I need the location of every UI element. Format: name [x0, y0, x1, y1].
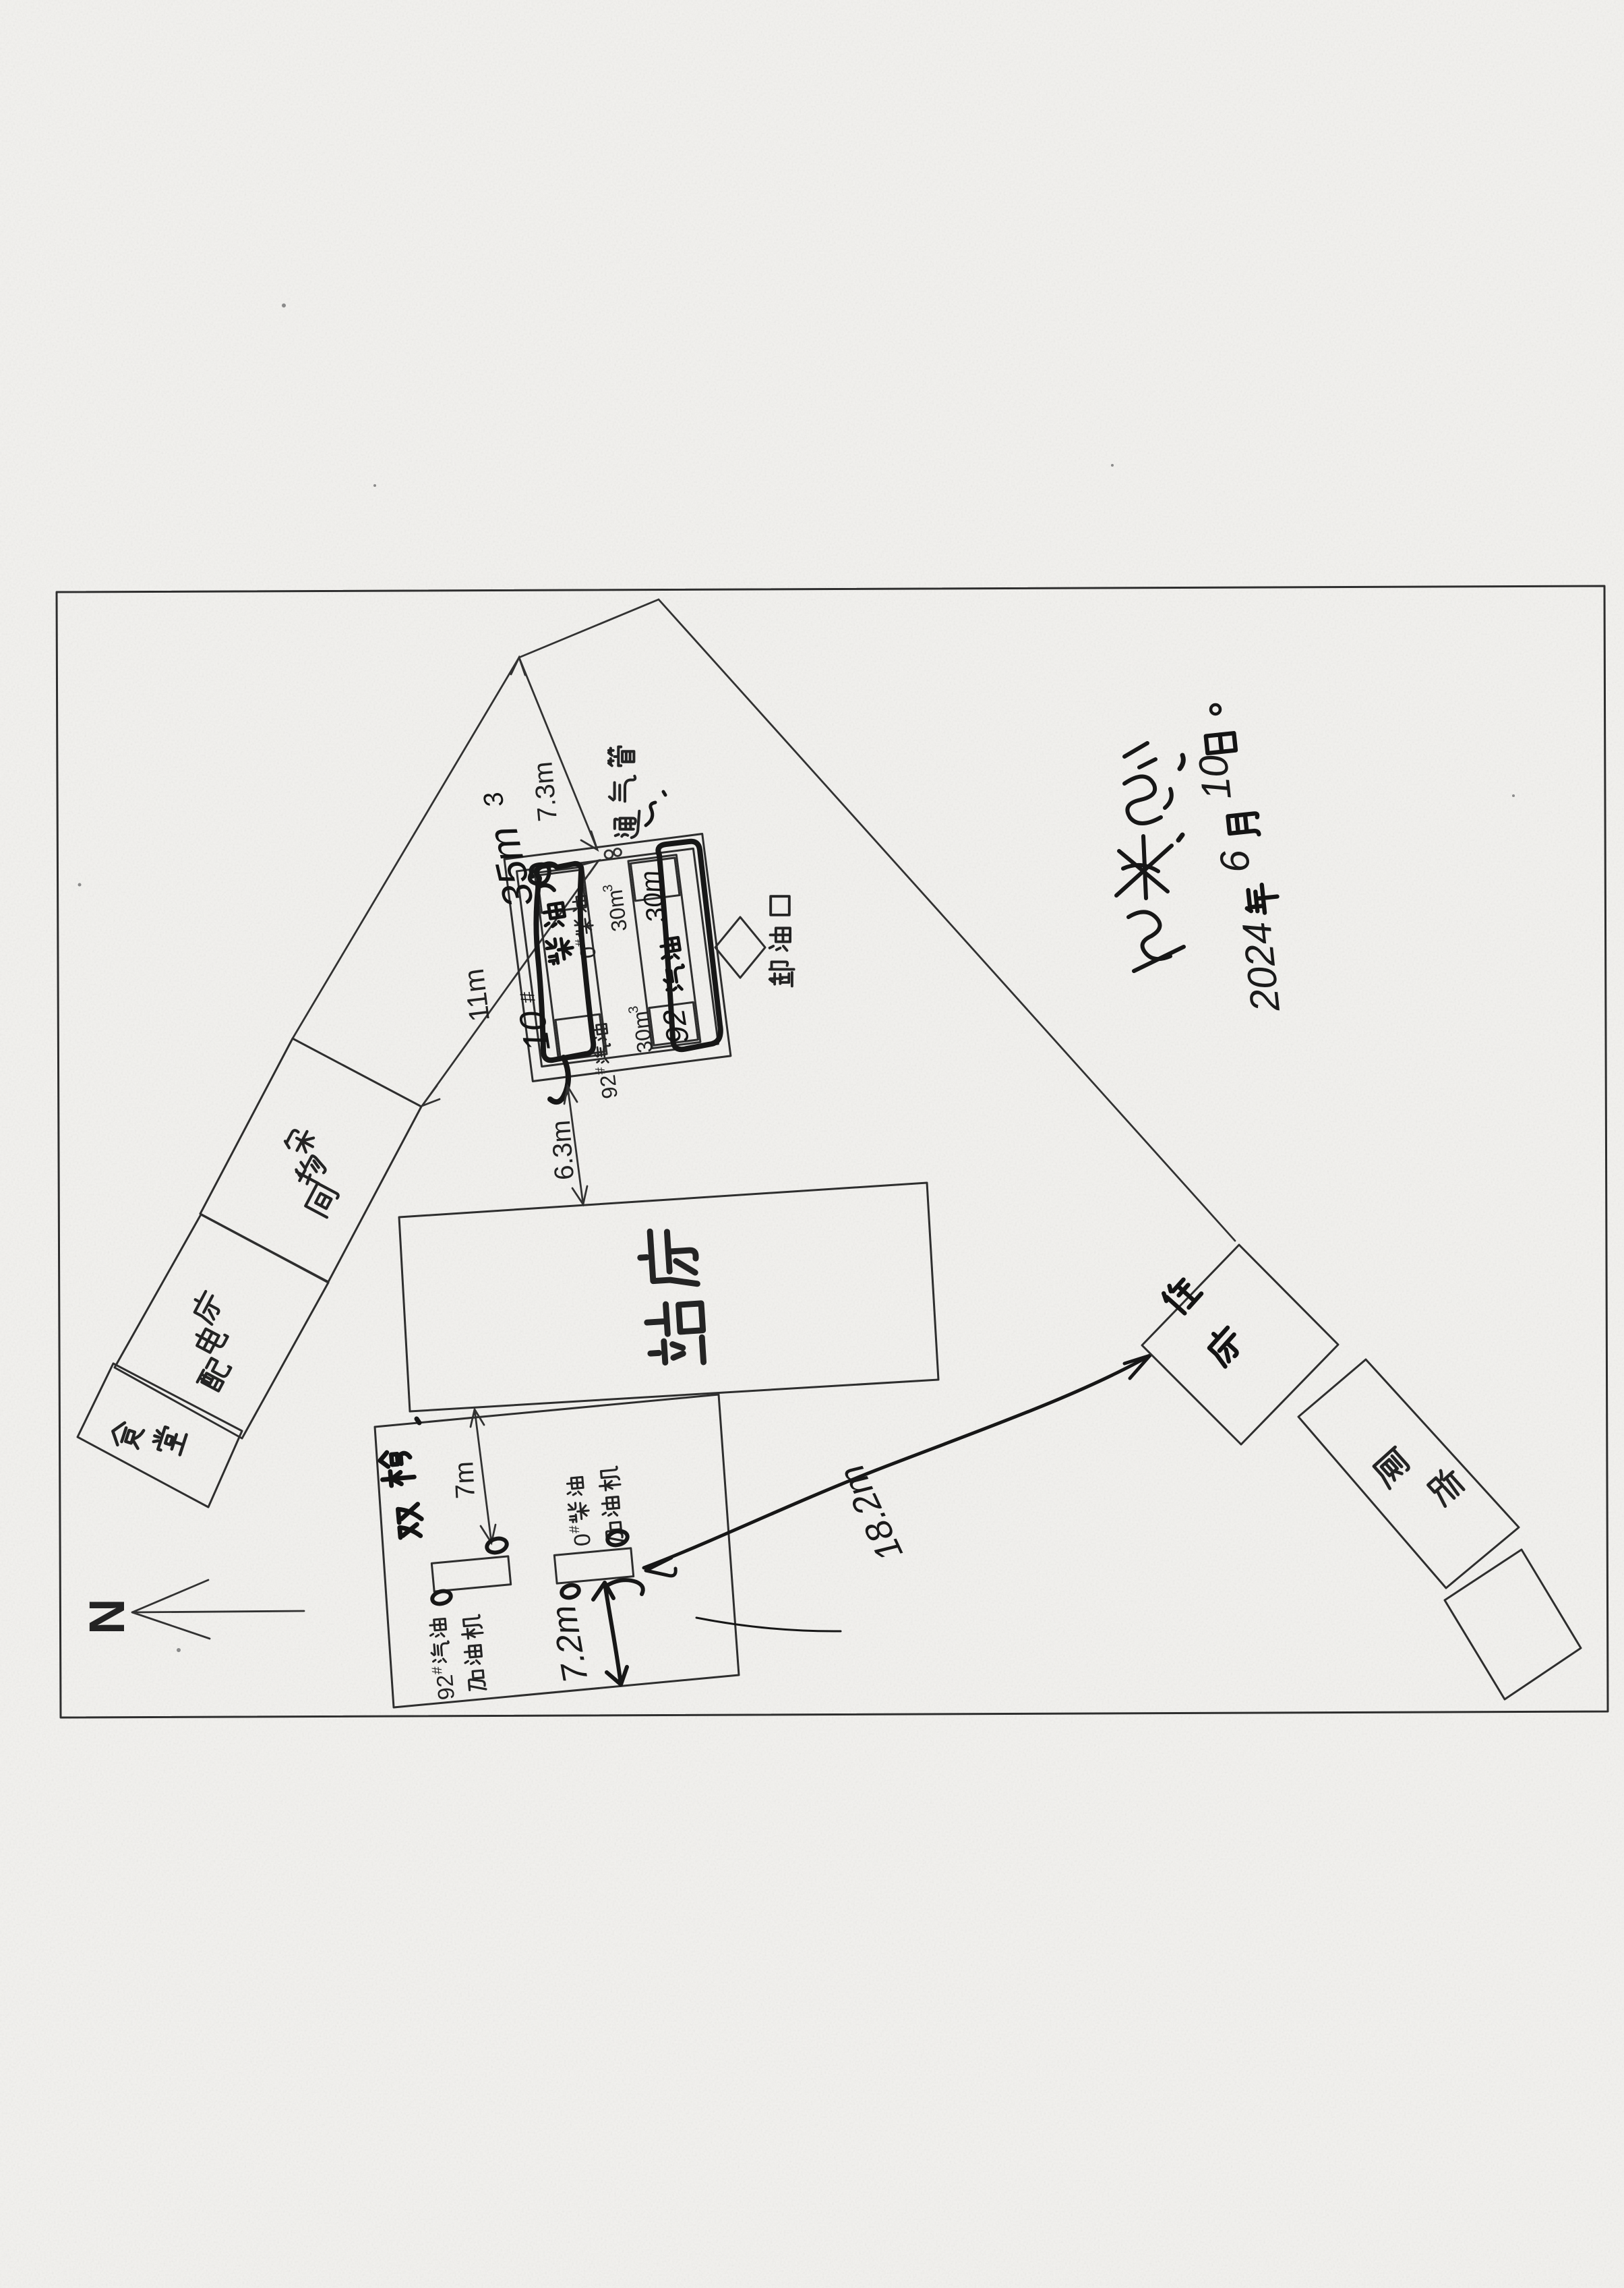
- svg-text:2024: 2024: [1234, 920, 1288, 1015]
- svg-text:7m: 7m: [449, 1461, 481, 1500]
- svg-text:6.3m: 6.3m: [546, 1119, 580, 1181]
- svg-text:30m: 30m: [603, 888, 632, 933]
- svg-text:92: 92: [595, 1074, 622, 1101]
- svg-text:N: N: [79, 1599, 135, 1635]
- svg-text:10: 10: [512, 1008, 558, 1055]
- svg-text:11m: 11m: [458, 967, 495, 1024]
- svg-text:#: #: [429, 1666, 446, 1675]
- svg-text:#: #: [566, 1525, 582, 1534]
- svg-text:7.3m: 7.3m: [528, 761, 563, 823]
- svg-text:0: 0: [569, 1532, 596, 1547]
- svg-text:10: 10: [1190, 753, 1240, 802]
- svg-text:30m: 30m: [628, 1009, 657, 1054]
- svg-text:92: 92: [656, 1007, 696, 1047]
- svg-text:92: 92: [432, 1674, 460, 1701]
